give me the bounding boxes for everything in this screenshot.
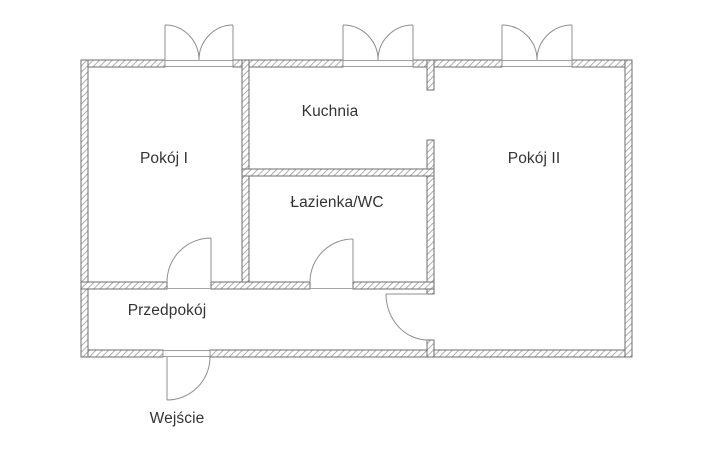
floor-plan: Pokój I Kuchnia Łazienka/WC Pokój II Prz… [0,0,710,467]
window-sill [165,61,233,67]
wall-room2-segment [427,140,434,294]
entrance-label: Wejście [150,410,205,428]
wall-bottom-segment [81,350,163,357]
wall-bottom-segment [210,350,632,357]
wall-left [81,60,88,357]
window-symbol-kitchen [343,25,413,60]
entrance-sill [163,351,210,357]
wall-hallway-segment [353,282,434,289]
wall-hallway-segment [211,282,310,289]
wall-top-segment [81,60,165,67]
window-symbol-room2 [502,25,572,60]
window-sill [502,61,572,67]
wall-hallway-segment [81,282,167,289]
door-symbol-bathroom [310,239,353,282]
room-label-room2: Pokój II [508,150,561,168]
floor-plan-drawing [0,0,710,467]
room-label-bathroom: Łazienka/WC [290,194,383,212]
wall-kitchen-bathroom [242,169,434,176]
room-label-hallway: Przedpokój [128,302,207,320]
wall-right [625,60,632,357]
wall-room2-segment [427,60,434,90]
door-symbol-room1 [167,238,211,282]
windows [165,25,572,60]
window-symbol-room1 [165,25,233,60]
room-label-kitchen: Kuchnia [302,103,359,121]
room-label-room1: Pokój I [140,150,188,168]
wall-top-segment [413,60,502,67]
wall-top-segment [572,60,632,67]
wall-room2-segment [427,340,434,357]
door-symbol-entrance [167,357,210,400]
door-symbol-room2 [386,294,428,340]
window-sill [343,61,413,67]
